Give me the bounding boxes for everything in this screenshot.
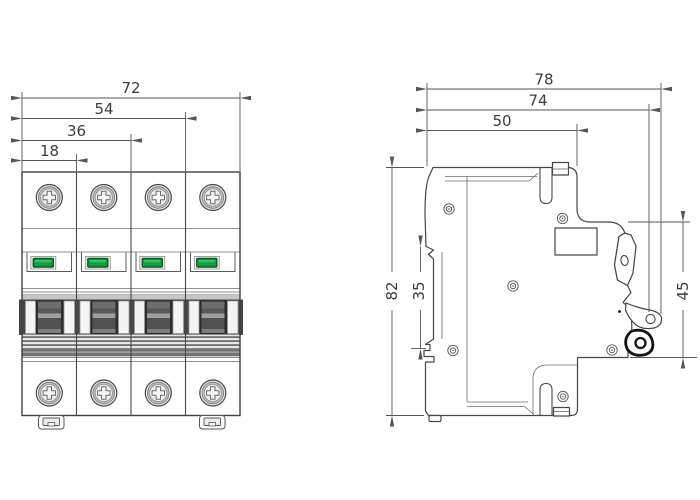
toggle-handle-pole4	[189, 300, 238, 335]
status-indicator-window-1	[31, 257, 56, 270]
dim-label-74: 74	[528, 92, 547, 110]
terminal-screw-icon	[36, 380, 62, 406]
dim-label-82: 82	[383, 281, 401, 300]
din-rail-clip-right	[200, 416, 226, 430]
indicator-green	[197, 259, 217, 268]
dim-label-50: 50	[492, 112, 511, 130]
clip-foot-tab	[429, 416, 441, 422]
indicator-green	[88, 259, 108, 268]
breaker-body-side	[424, 168, 632, 416]
dim-label-78: 78	[534, 71, 553, 89]
top-clip-tab	[553, 163, 569, 176]
toggle-handle-pole2	[80, 300, 129, 335]
indicator-green	[142, 259, 162, 268]
terminal-screw-icon	[145, 380, 171, 406]
status-indicator-window-2	[85, 257, 110, 270]
padlock-cam	[626, 330, 653, 355]
terminal-screw-icon	[36, 185, 62, 211]
din-rail-clip-left	[39, 416, 65, 430]
dim-label-35: 35	[410, 281, 428, 300]
dim-label-54: 54	[94, 100, 113, 118]
status-indicator-window-4	[194, 257, 219, 270]
pivot-dot	[618, 310, 621, 313]
terminal-screw-icon	[91, 380, 117, 406]
side-view: 78 74 50 82 35 45	[383, 71, 697, 422]
terminal-screw-icon	[145, 185, 171, 211]
toggle-handle-pole1	[26, 300, 75, 335]
front-dimensions: 72 54 36 18	[22, 79, 240, 171]
dim-label-45: 45	[674, 281, 692, 300]
terminal-recess	[555, 228, 597, 255]
technical-drawing-canvas: 72 54 36 18	[0, 0, 700, 500]
dim-label-36: 36	[67, 122, 86, 140]
breaker-dimension-drawing: 72 54 36 18	[0, 0, 700, 500]
terminal-screw-icon	[91, 185, 117, 211]
indicator-green	[33, 259, 53, 268]
front-view: 72 54 36 18	[20, 79, 243, 429]
terminal-screw-icon	[200, 185, 226, 211]
status-indicator-window-3	[140, 257, 165, 270]
toggle-handle-pole3	[135, 300, 184, 335]
dim-label-72: 72	[121, 79, 140, 97]
toggle-lever-side	[615, 233, 637, 286]
dim-label-18: 18	[40, 142, 59, 160]
terminal-screw-icon	[200, 380, 226, 406]
bottom-clip-tab	[554, 408, 570, 417]
